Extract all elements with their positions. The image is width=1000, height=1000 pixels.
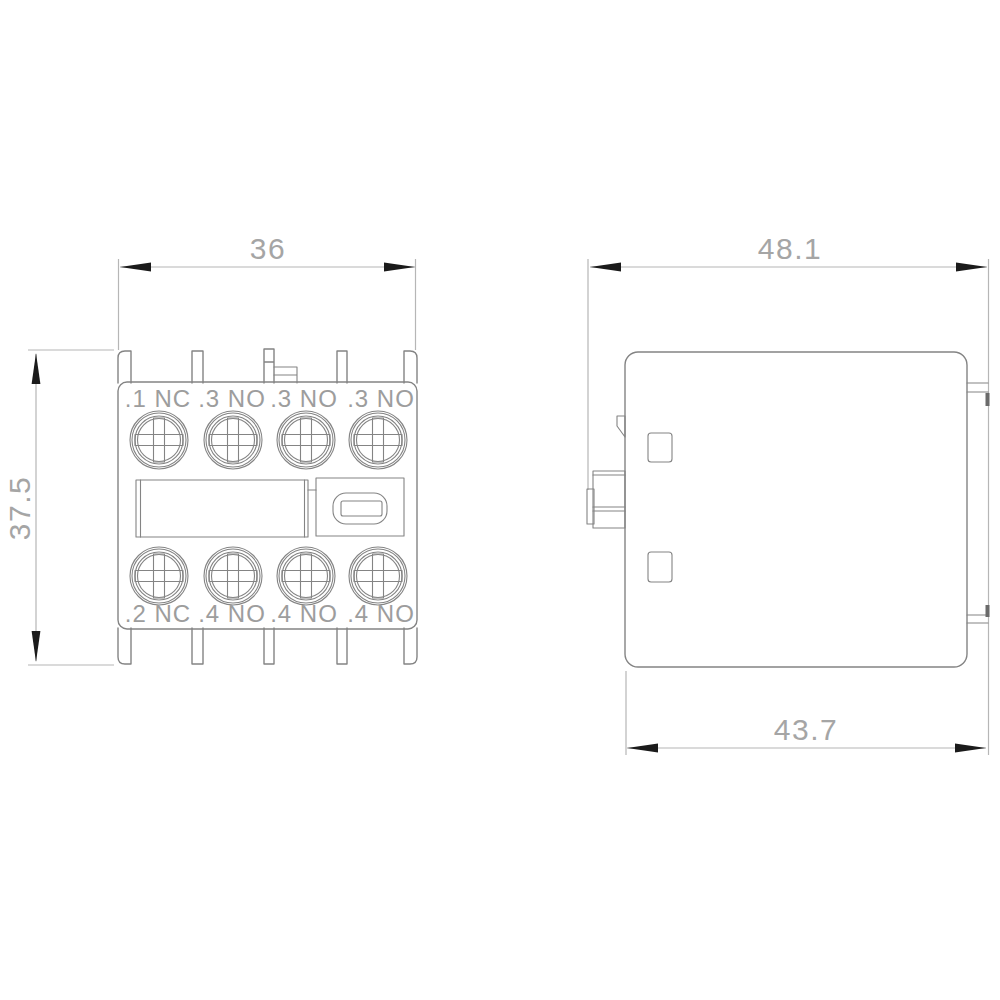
- terminal-labels-top: .1 NC .3 NO .3 NO .3 NO: [125, 385, 415, 412]
- mounting-tab: [192, 351, 203, 383]
- top-mounting-tabs: [118, 349, 417, 383]
- arrow-right-icon: [956, 263, 987, 272]
- terminal-screw-icon: [130, 411, 188, 469]
- mounting-tab: [118, 628, 131, 664]
- front-width-dimension-value: 36: [250, 232, 286, 265]
- din-rail-clip: [587, 471, 625, 528]
- side-depth-dimension-value: 43.7: [774, 713, 838, 746]
- rear-mounting-strip: [967, 383, 990, 623]
- mounting-tab: [404, 351, 417, 383]
- terminal-label: .1 NC: [125, 385, 191, 412]
- arrow-right-icon: [384, 263, 415, 272]
- marking-field: [136, 480, 316, 537]
- front-body: .1 NC .3 NO .3 NO .3 NO: [118, 349, 417, 664]
- terminal-label: .3 NO: [270, 385, 338, 412]
- mounting-tab: [192, 628, 203, 664]
- mounting-tab: [404, 628, 417, 664]
- terminal-label: .4 NO: [198, 600, 266, 627]
- dimensional-drawing: 36 37.5: [0, 0, 1000, 1000]
- side-width-dimension: 48.1: [588, 232, 989, 755]
- actuator-button-inner: [341, 501, 382, 516]
- marking-field-inner-lines: [141, 480, 305, 537]
- mounting-tab: [264, 628, 274, 664]
- square-opening-bottom: [648, 552, 672, 582]
- terminal-screw-icon: [277, 547, 335, 605]
- technical-drawing-page: 36 37.5: [0, 0, 1000, 1000]
- marking-field-outline: [136, 480, 308, 537]
- tab-step: [274, 367, 297, 383]
- terminal-label: .3 NO: [198, 385, 266, 412]
- screw-terminals-top: [130, 411, 407, 469]
- front-width-dimension: 36: [119, 232, 416, 350]
- side-body: [587, 352, 990, 667]
- release-notch: [617, 416, 625, 437]
- side-view: 48.1: [587, 232, 990, 755]
- snap-hook-top: [986, 393, 990, 406]
- clip-lines: [593, 475, 625, 511]
- mounting-tab: [337, 628, 347, 664]
- terminal-screw-icon: [204, 547, 262, 605]
- terminal-label: .2 NC: [125, 600, 191, 627]
- extension-lines: [119, 259, 416, 350]
- terminal-screw-icon: [349, 411, 407, 469]
- terminal-label: .4 NO: [347, 600, 415, 627]
- terminal-labels-bottom: .2 NC .4 NO .4 NO .4 NO: [125, 600, 415, 627]
- arrow-left-icon: [627, 744, 658, 753]
- terminal-screw-icon: [130, 547, 188, 605]
- strip-lines: [967, 383, 988, 623]
- mounting-tab: [118, 351, 131, 383]
- terminal-label: .3 NO: [347, 385, 415, 412]
- arrow-left-icon: [120, 263, 151, 272]
- side-width-dimension-value: 48.1: [758, 232, 822, 265]
- mounting-tab: [264, 349, 274, 383]
- front-height-dimension: 37.5: [3, 350, 114, 665]
- clip-body: [593, 471, 625, 528]
- actuator-panel-outline: [316, 478, 404, 536]
- actuator-panel: [316, 478, 404, 536]
- square-opening-top: [648, 433, 672, 462]
- bottom-mounting-tabs: [118, 628, 417, 664]
- arrow-right-icon: [955, 744, 986, 753]
- side-depth-dimension: 43.7: [626, 671, 986, 755]
- mounting-tab: [337, 351, 347, 383]
- front-height-dimension-value: 37.5: [3, 476, 36, 540]
- front-view: 36 37.5: [3, 232, 417, 665]
- arrow-left-icon: [590, 263, 621, 272]
- terminal-screw-icon: [349, 547, 407, 605]
- arrow-up-icon: [32, 353, 41, 384]
- snap-hook-bottom: [986, 605, 990, 617]
- terminal-screw-icon: [277, 411, 335, 469]
- arrow-down-icon: [32, 631, 41, 662]
- terminal-label: .4 NO: [270, 600, 338, 627]
- side-body-outline: [625, 352, 967, 667]
- terminal-screw-icon: [204, 411, 262, 469]
- extension-lines: [28, 350, 114, 665]
- screw-terminals-bottom: [130, 547, 407, 605]
